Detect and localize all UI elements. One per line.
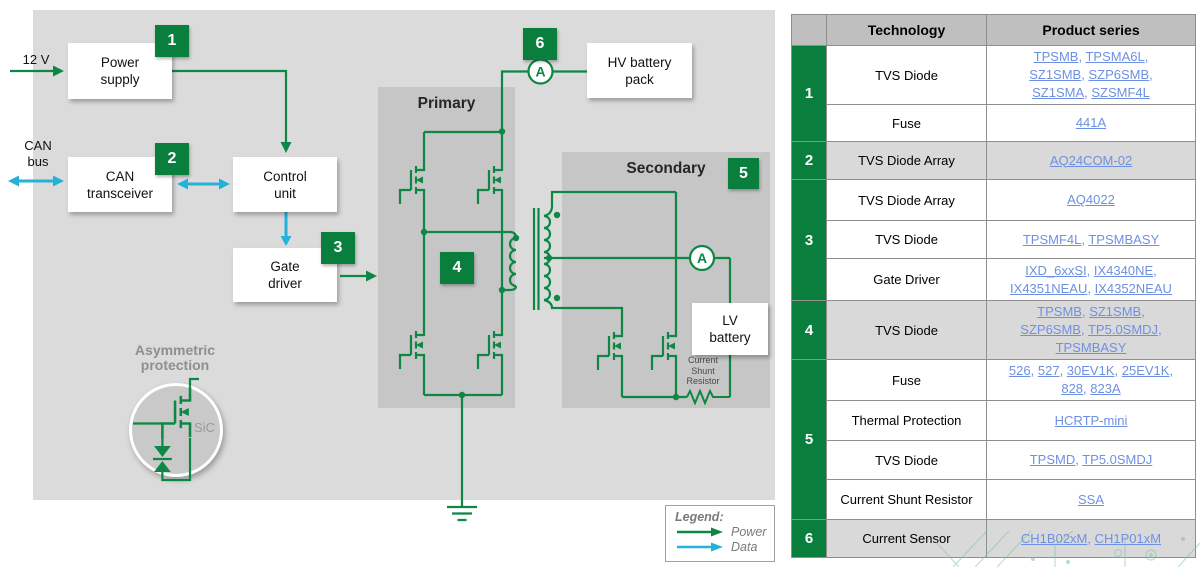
power-arrow-icon <box>675 526 725 538</box>
sic-label: SiC <box>194 420 215 435</box>
number-column-header <box>792 15 827 46</box>
product-link[interactable]: TPSMB <box>1037 304 1082 319</box>
secondary-mosfets <box>598 324 676 370</box>
badge-1: 1 <box>155 25 189 57</box>
table-row: 4TVS DiodeTPSMB, SZ1SMB, SZP6SMB, TP5.0S… <box>792 301 1196 360</box>
product-link[interactable]: TPSMBASY <box>1088 232 1159 247</box>
lv-battery-box: LV battery <box>692 303 768 355</box>
asymmetric-protection-label: Asymmetric protection <box>124 343 226 373</box>
asymmetric-protection-circuit <box>133 379 199 480</box>
table-row: TVS DiodeTPSMF4L, TPSMBASY <box>792 221 1196 259</box>
product-link[interactable]: SZP6SMB <box>1020 322 1081 337</box>
product-series-cell: TPSMB, TPSMA6L, SZ1SMB, SZP6SMB, SZ1SMA,… <box>987 46 1196 105</box>
dc-dc-converter-application-page: Primary Secondary <box>0 0 1200 567</box>
circuit-trace-decoration <box>935 531 1200 567</box>
badge-4: 4 <box>440 252 474 284</box>
current-sensor-ammeter-hv: A <box>529 60 553 84</box>
label-can-bus: CAN bus <box>16 138 60 170</box>
table-header-row: Technology Product series <box>792 15 1196 46</box>
product-link[interactable]: TPSMB <box>1034 49 1079 64</box>
product-link[interactable]: SSA <box>1078 492 1104 507</box>
legend-power-label: Power <box>731 525 766 539</box>
product-link[interactable]: 828 <box>1061 381 1083 396</box>
table-row: Fuse441A <box>792 105 1196 142</box>
product-link[interactable]: SZ1SMA <box>1032 85 1084 100</box>
legend-data-label: Data <box>731 540 757 554</box>
product-series-cell: HCRTP-mini <box>987 401 1196 441</box>
data-arrow-icon <box>675 541 725 553</box>
shunt-resistor-symbol <box>687 391 730 403</box>
legend-box: Legend: Power Data <box>665 505 775 562</box>
product-series-table: Technology Product series 1TVS DiodeTPSM… <box>791 14 1196 558</box>
technology-cell: TVS Diode <box>827 441 987 480</box>
product-link[interactable]: 823A <box>1090 381 1120 396</box>
technology-cell: Gate Driver <box>827 259 987 301</box>
product-series-cell: IXD_6xxSI, IX4340NE, IX4351NEAU, IX4352N… <box>987 259 1196 301</box>
product-link[interactable]: IX4352NEAU <box>1095 281 1172 296</box>
product-series-cell: 441A <box>987 105 1196 142</box>
control-unit-box: Control unit <box>233 157 337 212</box>
label-12v: 12 V <box>14 52 58 68</box>
product-link[interactable]: TPSMF4L <box>1023 232 1082 247</box>
technology-cell: TVS Diode Array <box>827 142 987 180</box>
technology-column-header: Technology <box>827 15 987 46</box>
product-link[interactable]: TPSMBASY <box>1056 340 1127 355</box>
product-series-cell: TPSMF4L, TPSMBASY <box>987 221 1196 259</box>
product-link[interactable]: TP5.0SMDJ <box>1088 322 1158 337</box>
product-link[interactable]: SZ1SMB <box>1029 67 1081 82</box>
group-number-cell: 6 <box>792 520 827 558</box>
technology-cell: Current Shunt Resistor <box>827 480 987 520</box>
group-number-cell: 4 <box>792 301 827 360</box>
group-number-cell: 1 <box>792 46 827 142</box>
product-link[interactable]: 441A <box>1076 115 1106 130</box>
group-number-cell: 2 <box>792 142 827 180</box>
product-series-cell: TPSMD, TP5.0SMDJ <box>987 441 1196 480</box>
group-number-cell: 5 <box>792 360 827 520</box>
product-link[interactable]: HCRTP-mini <box>1055 413 1128 428</box>
badge-2: 2 <box>155 143 189 175</box>
group-number-cell: 3 <box>792 180 827 301</box>
hv-battery-pack-box: HV battery pack <box>587 43 692 98</box>
technology-cell: TVS Diode <box>827 46 987 105</box>
product-series-cell: TPSMB, SZ1SMB, SZP6SMB, TP5.0SMDJ, TPSMB… <box>987 301 1196 360</box>
product-series-cell: 526, 527, 30EV1K, 25EV1K, 828, 823A <box>987 360 1196 401</box>
svg-text:A: A <box>697 250 707 266</box>
table-row: Gate DriverIXD_6xxSI, IX4340NE, IX4351NE… <box>792 259 1196 301</box>
product-link[interactable]: SZ1SMB <box>1089 304 1141 319</box>
badge-3: 3 <box>321 232 355 264</box>
product-series-cell: SSA <box>987 480 1196 520</box>
power-wires <box>10 66 730 521</box>
product-series-column-header: Product series <box>987 15 1196 46</box>
technology-cell: Fuse <box>827 105 987 142</box>
product-link[interactable]: AQ24COM-02 <box>1050 153 1132 168</box>
table-row: 1TVS DiodeTPSMB, TPSMA6L, SZ1SMB, SZP6SM… <box>792 46 1196 105</box>
product-link[interactable]: 30EV1K <box>1067 363 1115 378</box>
product-link[interactable]: IX4340NE <box>1094 263 1153 278</box>
product-link[interactable]: SZP6SMB <box>1088 67 1149 82</box>
product-link[interactable]: IX4351NEAU <box>1010 281 1087 296</box>
product-link[interactable]: TPSMD <box>1030 452 1076 467</box>
product-link[interactable]: TPSMA6L <box>1085 49 1144 64</box>
table-row: 5Fuse526, 527, 30EV1K, 25EV1K, 828, 823A <box>792 360 1196 401</box>
table-row: Current Shunt ResistorSSA <box>792 480 1196 520</box>
technology-cell: Fuse <box>827 360 987 401</box>
technology-cell: TVS Diode <box>827 221 987 259</box>
product-link[interactable]: IXD_6xxSI <box>1025 263 1086 278</box>
table-row: 2TVS Diode ArrayAQ24COM-02 <box>792 142 1196 180</box>
technology-cell: TVS Diode <box>827 301 987 360</box>
product-series-cell: AQ24COM-02 <box>987 142 1196 180</box>
product-series-cell: AQ4022 <box>987 180 1196 221</box>
current-shunt-resistor-label: Current Shunt Resistor <box>678 355 728 387</box>
product-link[interactable]: AQ4022 <box>1067 192 1115 207</box>
table-row: TVS DiodeTPSMD, TP5.0SMDJ <box>792 441 1196 480</box>
product-link[interactable]: SZSMF4L <box>1091 85 1150 100</box>
product-link[interactable]: 25EV1K <box>1122 363 1170 378</box>
badge-5: 5 <box>728 158 759 189</box>
table-row: Thermal ProtectionHCRTP-mini <box>792 401 1196 441</box>
table-row: 3TVS Diode ArrayAQ4022 <box>792 180 1196 221</box>
product-link[interactable]: 526 <box>1009 363 1031 378</box>
ground-symbol <box>447 507 477 520</box>
badge-6: 6 <box>523 28 557 60</box>
current-sensor-ammeter-lv: A <box>690 246 714 270</box>
svg-text:A: A <box>535 64 545 80</box>
product-link[interactable]: TP5.0SMDJ <box>1082 452 1152 467</box>
legend-title: Legend: <box>675 510 774 524</box>
product-link[interactable]: 527 <box>1038 363 1060 378</box>
technology-cell: TVS Diode Array <box>827 180 987 221</box>
technology-cell: Thermal Protection <box>827 401 987 441</box>
